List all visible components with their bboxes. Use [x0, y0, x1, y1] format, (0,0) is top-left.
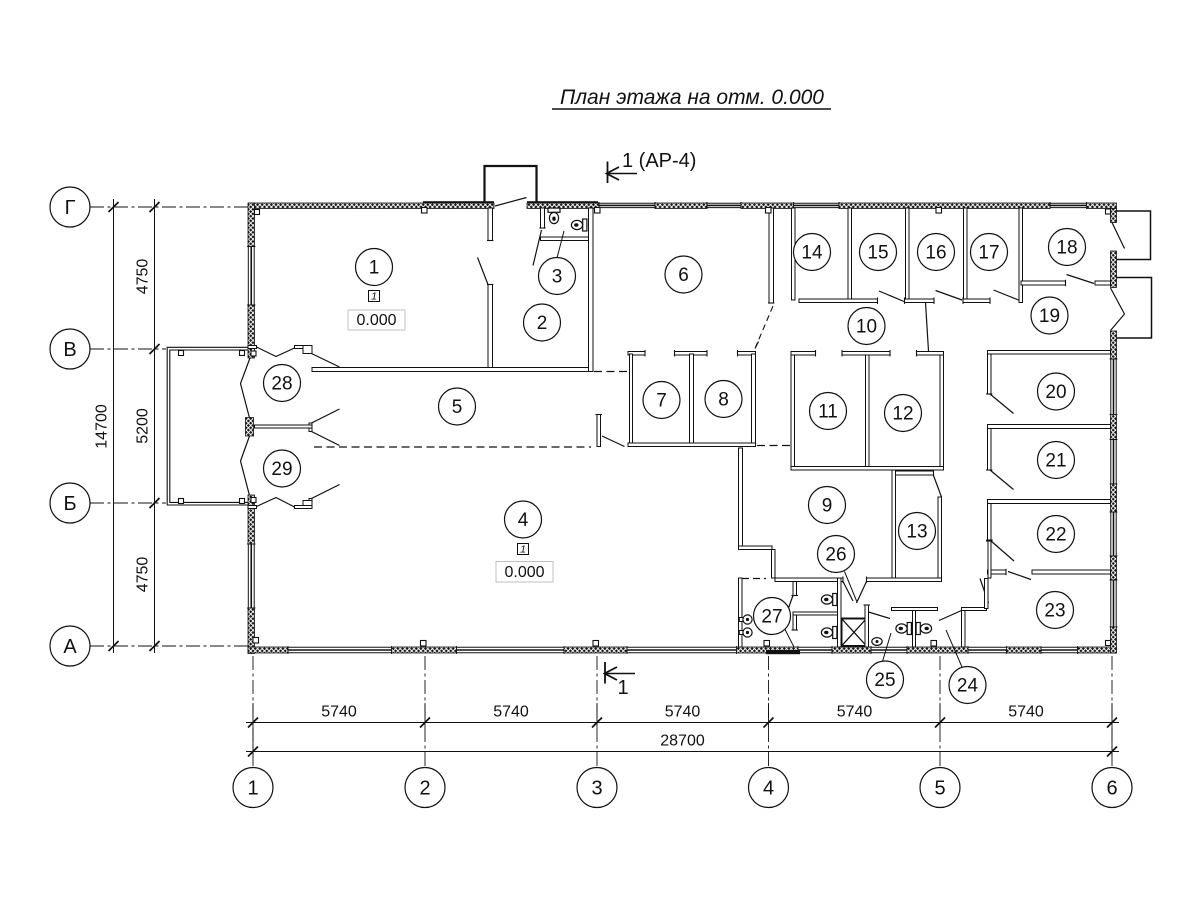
svg-text:1: 1	[369, 258, 380, 279]
svg-text:5740: 5740	[321, 704, 357, 721]
svg-text:5: 5	[452, 397, 463, 418]
svg-text:9: 9	[822, 496, 833, 517]
svg-text:28: 28	[271, 374, 292, 395]
svg-text:1: 1	[520, 544, 526, 556]
svg-text:8: 8	[718, 390, 729, 411]
svg-text:1: 1	[617, 677, 628, 699]
svg-text:5740: 5740	[837, 704, 873, 721]
svg-text:16: 16	[925, 243, 946, 264]
svg-text:Б: Б	[63, 493, 76, 515]
svg-text:5200: 5200	[135, 408, 152, 444]
svg-text:23: 23	[1044, 601, 1065, 622]
svg-text:В: В	[63, 339, 76, 361]
svg-text:0.000: 0.000	[504, 564, 544, 581]
svg-text:5740: 5740	[665, 704, 701, 721]
svg-text:5: 5	[934, 778, 945, 800]
svg-text:6: 6	[678, 265, 689, 286]
svg-text:3: 3	[552, 267, 563, 288]
svg-text:18: 18	[1056, 238, 1077, 259]
svg-text:21: 21	[1045, 451, 1066, 472]
svg-text:14700: 14700	[94, 404, 111, 449]
svg-text:План этажа на отм. 0.000: План этажа на отм. 0.000	[560, 86, 824, 109]
svg-text:1 (АР-4): 1 (АР-4)	[622, 150, 696, 172]
svg-text:А: А	[63, 636, 77, 658]
svg-text:6: 6	[1106, 778, 1117, 800]
svg-text:22: 22	[1045, 525, 1066, 546]
svg-text:0.000: 0.000	[356, 312, 396, 329]
svg-text:27: 27	[761, 607, 782, 628]
svg-text:29: 29	[271, 459, 292, 480]
svg-text:28700: 28700	[660, 733, 705, 750]
svg-text:4: 4	[763, 778, 774, 800]
svg-text:4750: 4750	[135, 557, 152, 593]
svg-text:19: 19	[1039, 306, 1060, 327]
svg-text:7: 7	[656, 391, 667, 412]
svg-text:4: 4	[518, 510, 529, 531]
svg-text:Г: Г	[65, 197, 76, 219]
svg-text:24: 24	[957, 676, 979, 697]
svg-text:26: 26	[825, 545, 846, 566]
svg-text:1: 1	[371, 291, 377, 303]
svg-text:13: 13	[906, 522, 927, 543]
svg-text:5740: 5740	[493, 704, 529, 721]
svg-text:2: 2	[419, 778, 430, 800]
svg-text:2: 2	[537, 313, 548, 334]
svg-text:10: 10	[856, 317, 877, 338]
svg-text:11: 11	[818, 402, 838, 423]
svg-text:17: 17	[978, 243, 999, 264]
svg-text:12: 12	[892, 404, 913, 425]
svg-text:15: 15	[867, 243, 888, 264]
svg-text:5740: 5740	[1008, 704, 1044, 721]
svg-text:14: 14	[801, 243, 823, 264]
svg-text:4750: 4750	[135, 259, 152, 295]
svg-text:1: 1	[247, 778, 258, 800]
svg-text:25: 25	[874, 670, 895, 691]
svg-text:20: 20	[1045, 382, 1066, 403]
svg-text:3: 3	[591, 778, 602, 800]
